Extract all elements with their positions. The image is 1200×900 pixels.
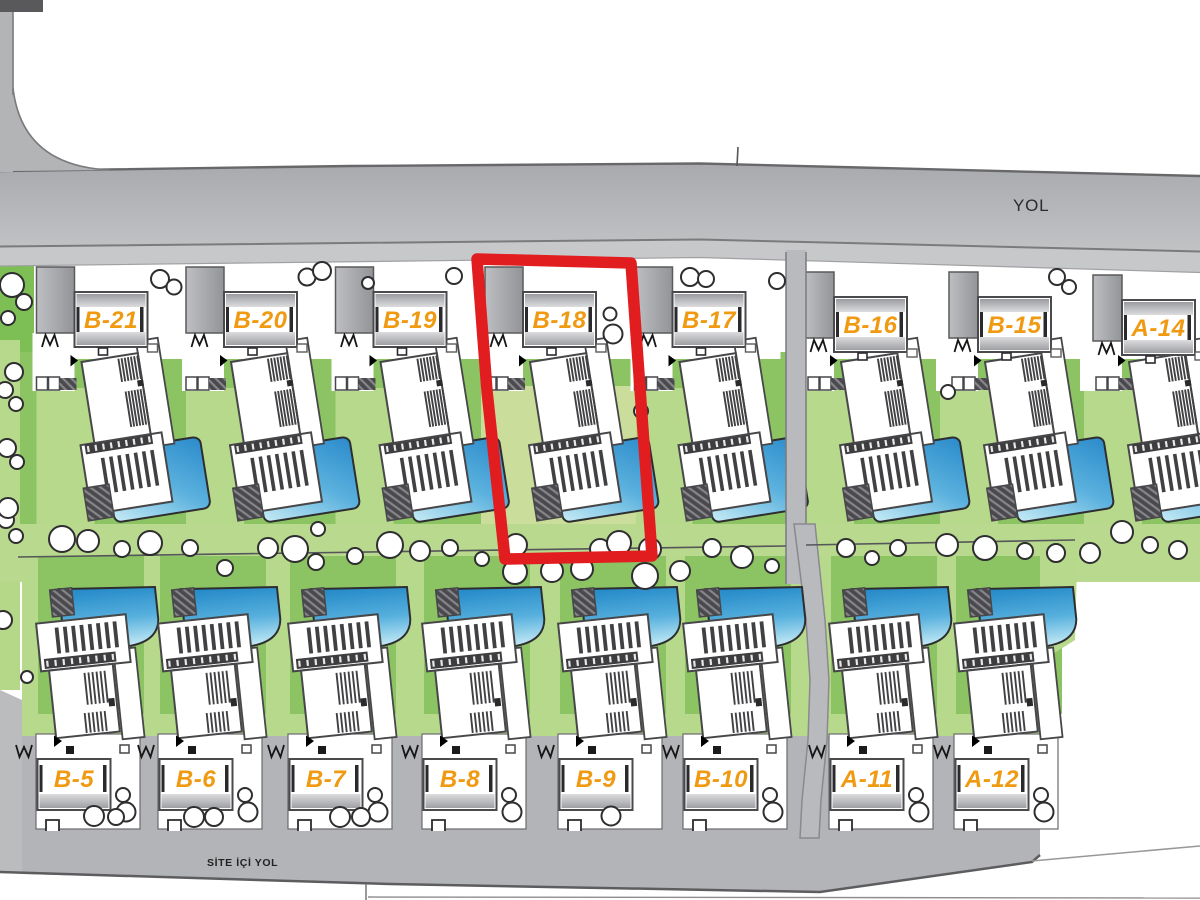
svg-text:B-5: B-5	[54, 766, 94, 793]
svg-text:B-9: B-9	[576, 766, 616, 793]
svg-text:A-11: A-11	[840, 766, 893, 793]
svg-text:B-10: B-10	[694, 766, 748, 793]
svg-text:B-18: B-18	[532, 307, 586, 334]
svg-text:B-19: B-19	[383, 307, 437, 334]
svg-text:B-20: B-20	[233, 307, 287, 334]
svg-text:A-14: A-14	[1130, 315, 1185, 342]
svg-text:YOL: YOL	[1013, 196, 1049, 215]
svg-text:A-12: A-12	[964, 766, 1019, 793]
svg-text:B-6: B-6	[176, 766, 216, 793]
svg-text:SİTE İÇİ YOL: SİTE İÇİ YOL	[207, 856, 278, 869]
svg-text:B-16: B-16	[843, 312, 897, 339]
svg-text:B-21: B-21	[84, 307, 138, 334]
svg-text:B-7: B-7	[306, 766, 347, 793]
svg-text:B-15: B-15	[987, 312, 1041, 339]
svg-text:B-17: B-17	[682, 307, 737, 334]
svg-text:B-8: B-8	[440, 766, 480, 793]
